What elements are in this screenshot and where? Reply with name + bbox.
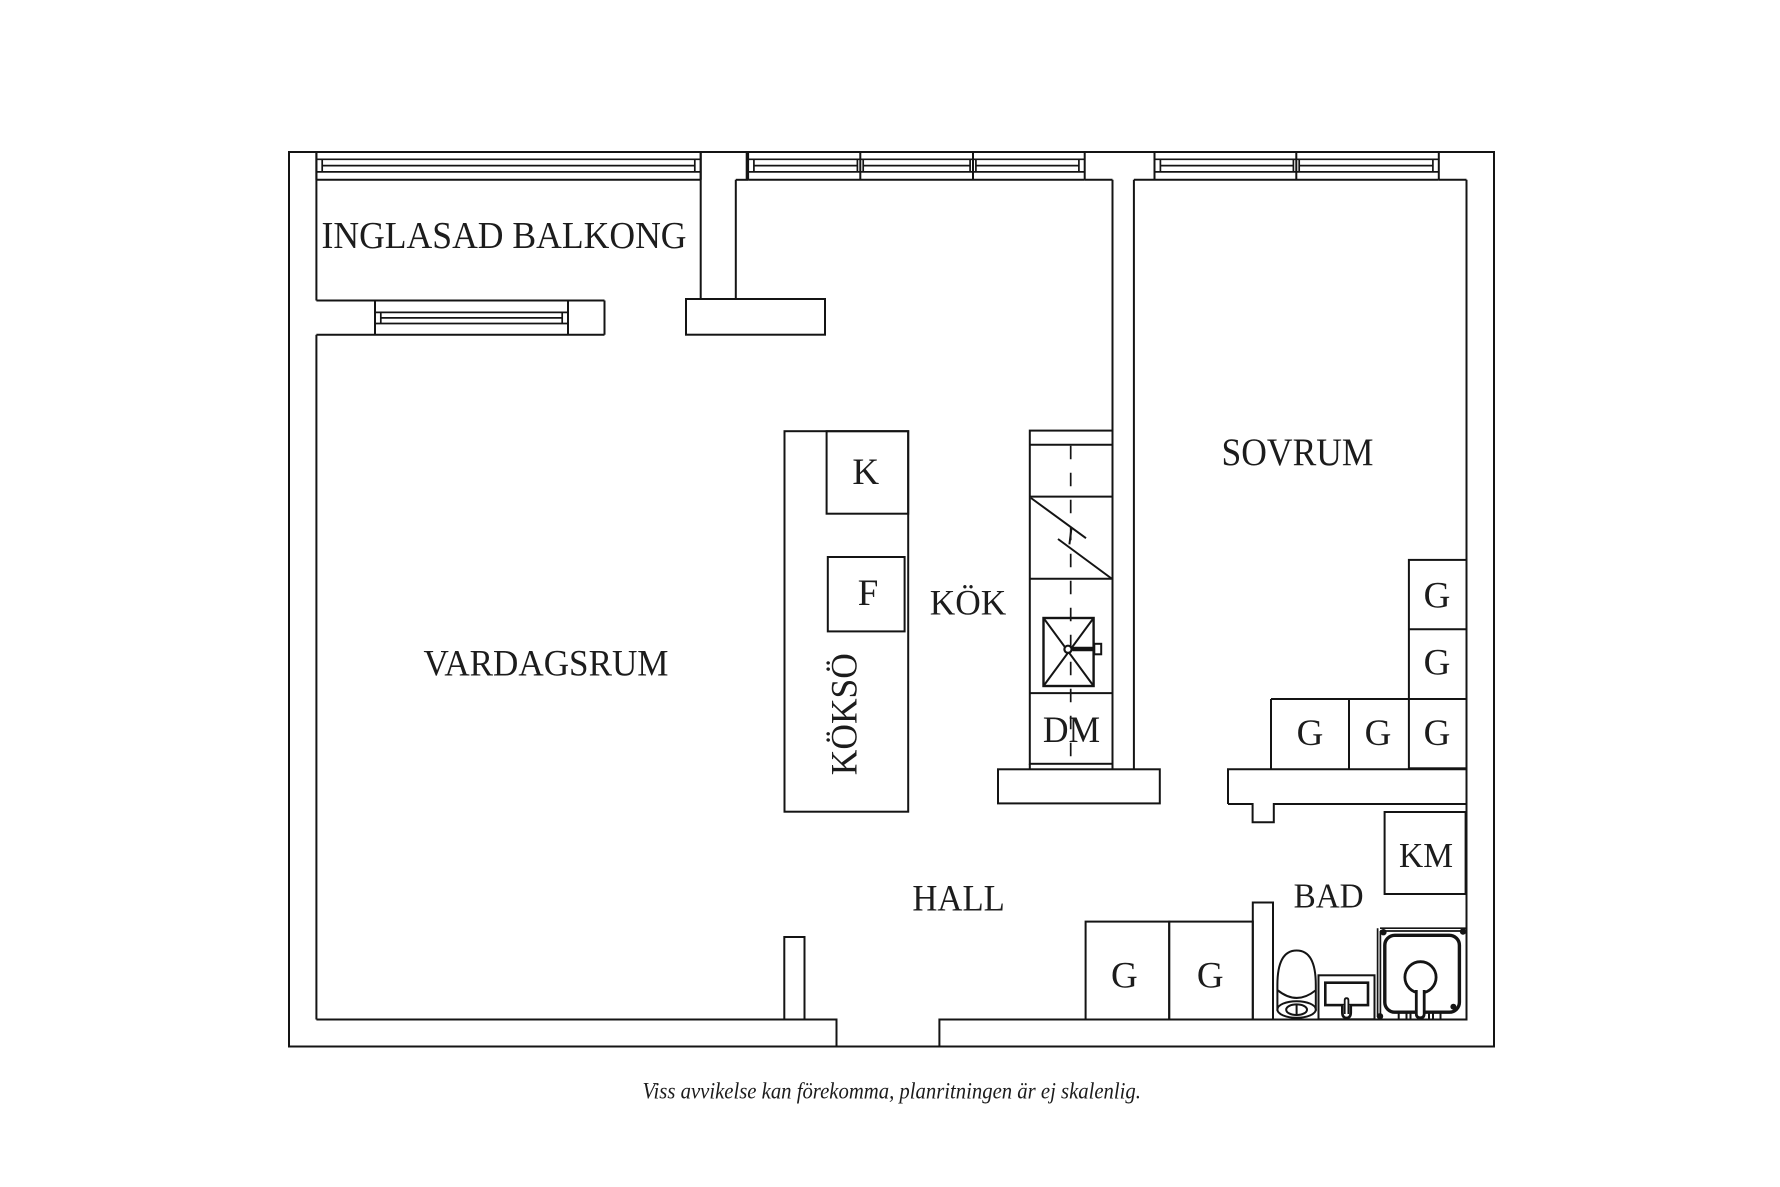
- svg-text:G: G: [1424, 713, 1451, 754]
- svg-text:VARDAGSRUM: VARDAGSRUM: [424, 644, 669, 685]
- svg-text:HALL: HALL: [912, 879, 1005, 920]
- svg-text:INGLASAD BALKONG: INGLASAD BALKONG: [322, 215, 687, 257]
- svg-text:KÖK: KÖK: [930, 583, 1007, 623]
- svg-text:DM: DM: [1043, 710, 1100, 751]
- svg-text:BAD: BAD: [1294, 877, 1364, 916]
- svg-text:K: K: [852, 452, 879, 493]
- svg-text:KÖKSÖ: KÖKSÖ: [825, 653, 866, 775]
- svg-text:G: G: [1424, 643, 1451, 684]
- svg-text:G: G: [1424, 575, 1451, 616]
- svg-text:SOVRUM: SOVRUM: [1222, 431, 1374, 474]
- svg-text:Viss avvikelse kan förekomma,: Viss avvikelse kan förekomma, planritnin…: [642, 1078, 1141, 1104]
- svg-text:G: G: [1111, 956, 1138, 997]
- svg-text:G: G: [1197, 956, 1224, 997]
- svg-text:KM: KM: [1399, 836, 1453, 875]
- svg-text:F: F: [858, 573, 879, 614]
- svg-text:G: G: [1365, 713, 1392, 754]
- svg-text:G: G: [1297, 713, 1324, 754]
